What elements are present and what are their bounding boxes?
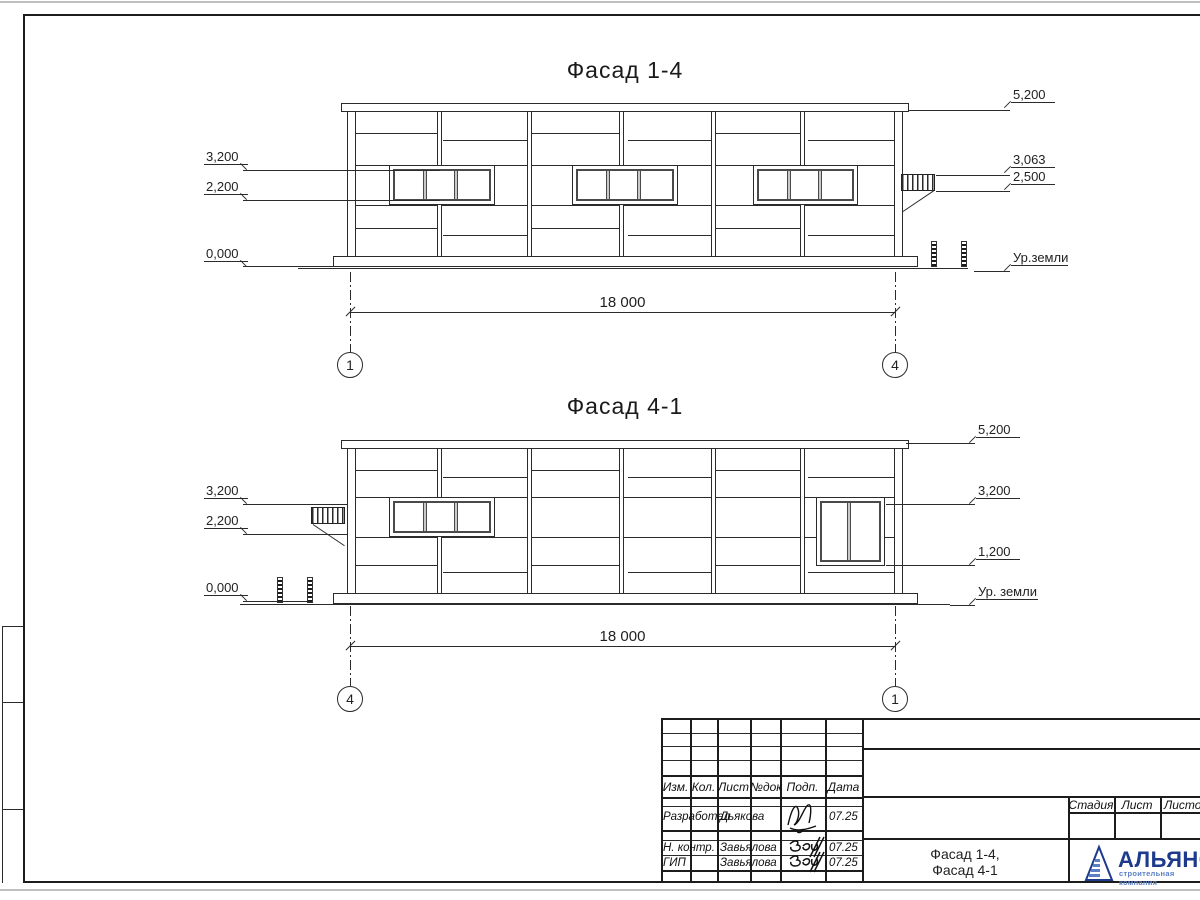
stage-header: Стадия [1068,798,1114,812]
row-name: Завьялова [720,857,777,869]
row-date: 07.25 [829,811,858,823]
drawing-sheet: { "drawing": { "facade_top": { "title": … [0,0,1200,900]
row-role: Н. контр. [663,842,715,854]
dimension-line [350,312,895,313]
dimension-value: 18 000 [350,628,895,645]
ground-line [298,268,968,269]
entrance-canopy [901,174,935,191]
col-header-data: Дата [825,780,862,794]
large-window [816,497,885,566]
sheet-title-line1: Фасад 1-4, [862,846,1068,862]
row-role: ГИП [663,857,686,869]
porch-post [931,241,937,267]
row-name: Дьякова [720,811,764,823]
entrance-canopy [311,507,345,524]
ground-line [240,604,950,605]
grid-bubble: 4 [337,686,363,712]
plinth [333,256,918,267]
paper-edge-top [0,1,1200,3]
sheet-header: Лист [1114,798,1160,812]
ribbon-window [753,165,858,205]
grid-bubble: 1 [337,352,363,378]
facade-title: Фасад 1-4 [450,57,800,84]
grid-bubble: 4 [882,352,908,378]
signature-gip [786,851,826,873]
signature-razrabotal [784,799,824,832]
grid-bubble: 1 [882,686,908,712]
ribbon-window [389,165,495,205]
dimension-line [350,646,895,647]
facade-title: Фасад 4-1 [450,393,800,420]
col-header-ndok: №док [750,780,780,794]
ribbon-window [389,497,495,537]
col-header-list: Лист [717,780,750,794]
ribbon-window [572,165,678,205]
sheets-header: Листов [1164,798,1200,812]
logo-pyramid-icon [1085,845,1113,882]
porch-post [961,241,967,267]
dimension-value: 18 000 [350,294,895,311]
col-header-izm: Изм. [661,780,690,794]
col-header-podp: Подп. [780,780,825,794]
porch-post [307,577,313,603]
logo-subtitle: строительная компания [1119,869,1200,887]
col-header-kol: Кол. [690,780,717,794]
row-date: 07.25 [829,842,858,854]
row-date: 07.25 [829,857,858,869]
paper-edge-bottom [0,889,1200,891]
porch-post [277,577,283,603]
plinth [333,593,918,604]
sheet-title-line2: Фасад 4-1 [862,862,1068,878]
row-name: Завьялова [720,842,777,854]
